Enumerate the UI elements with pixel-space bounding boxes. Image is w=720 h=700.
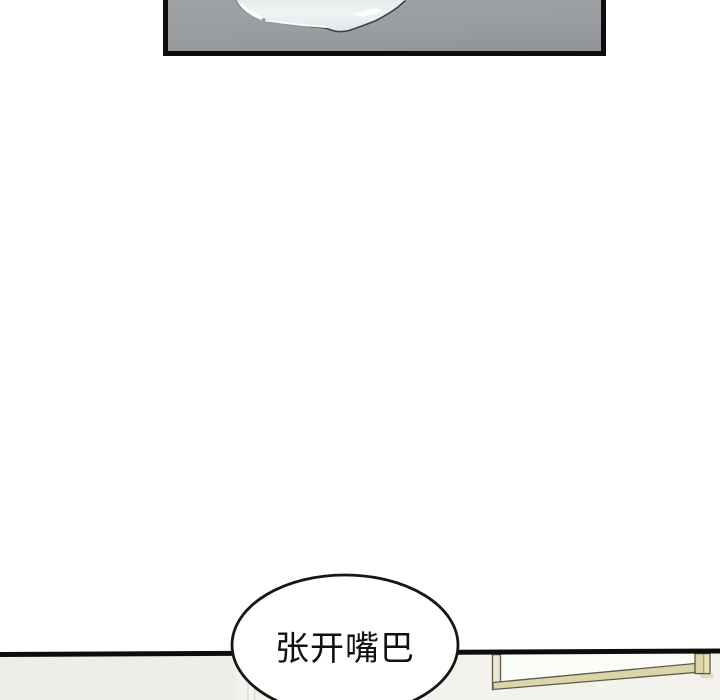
panel-gutter [0, 56, 720, 651]
spilled-liquid-drawing [168, 0, 601, 51]
speech-bubble-text: 张开嘴巴 [232, 575, 458, 700]
comic-page: 张开嘴巴 [0, 0, 720, 700]
comic-panel-floor [163, 0, 606, 56]
